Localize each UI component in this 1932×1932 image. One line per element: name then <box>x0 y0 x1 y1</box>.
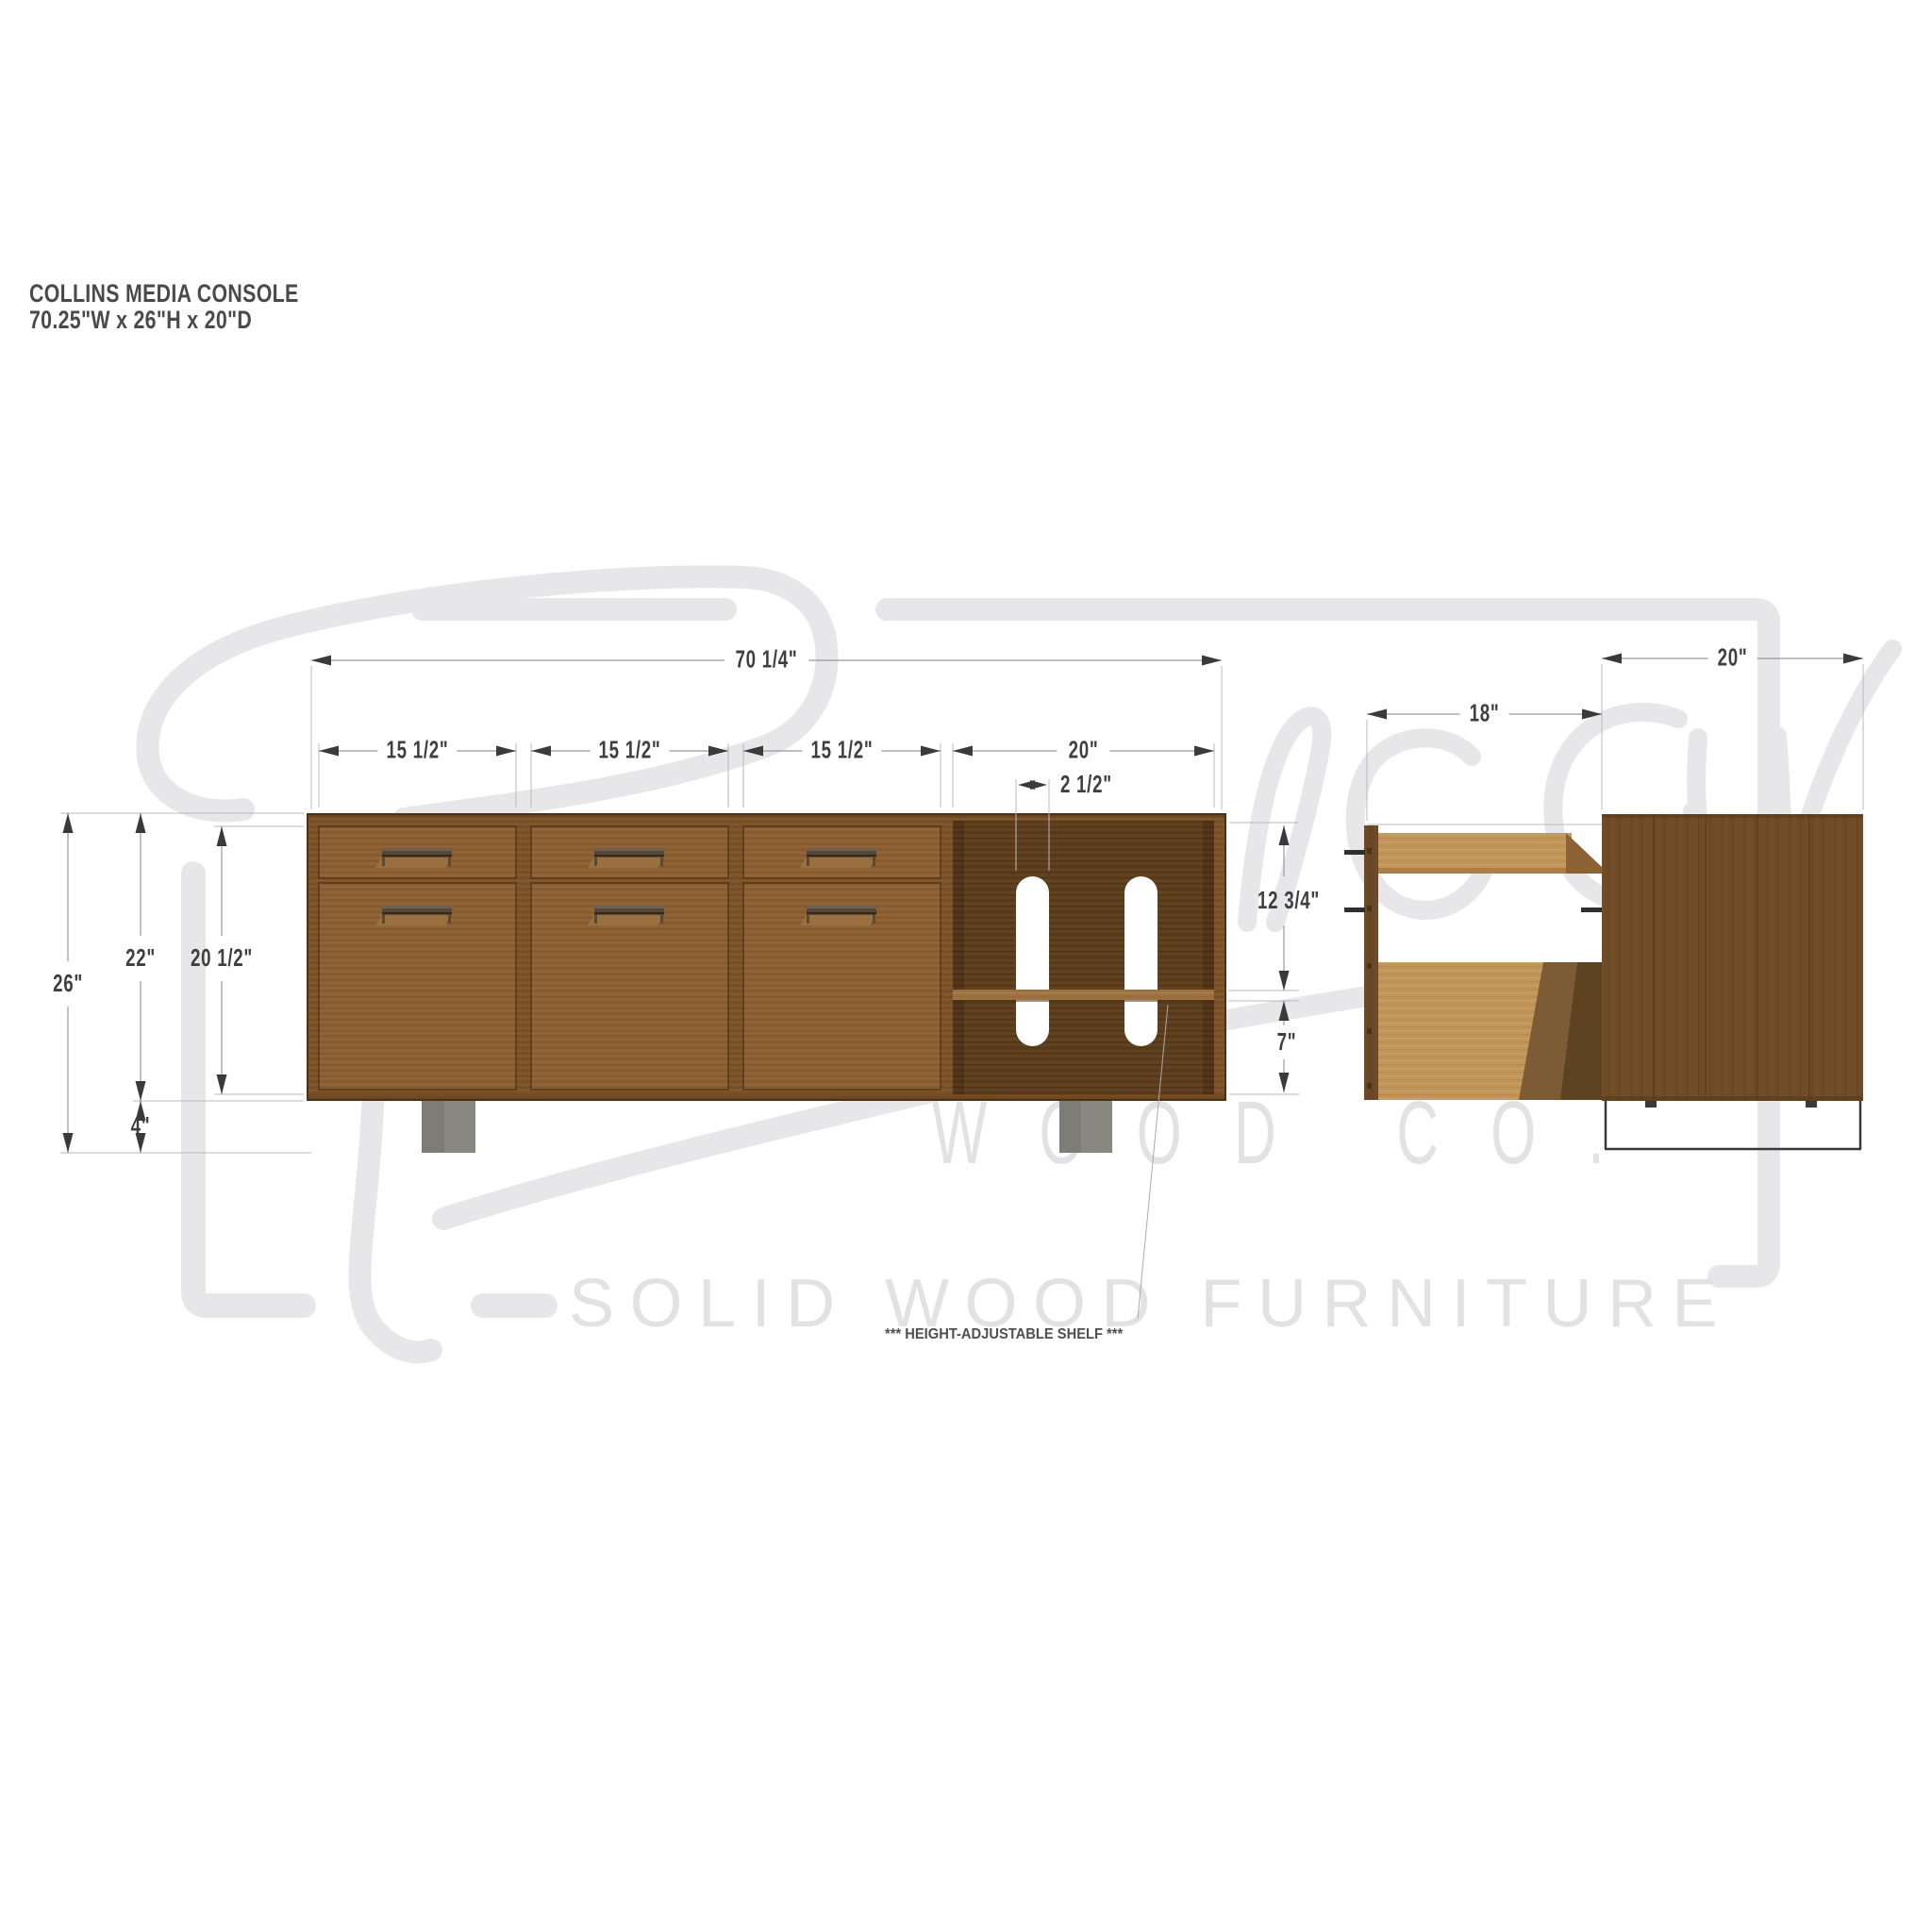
svg-text:2 1/2": 2 1/2" <box>1060 770 1112 798</box>
svg-text:18": 18" <box>1470 698 1500 726</box>
svg-text:22": 22" <box>125 943 156 972</box>
svg-text:15 1/2": 15 1/2" <box>811 735 874 763</box>
svg-text:26": 26" <box>53 969 83 997</box>
svg-text:70.25"W x 26"H x 20"D: 70.25"W x 26"H x 20"D <box>29 307 252 335</box>
svg-text:20": 20" <box>1718 642 1748 671</box>
svg-text:4": 4" <box>131 1111 151 1140</box>
svg-text:20 1/2": 20 1/2" <box>191 943 253 972</box>
svg-text:15 1/2": 15 1/2" <box>599 735 661 763</box>
svg-text:7": 7" <box>1277 1027 1297 1056</box>
svg-text:20": 20" <box>1069 735 1099 763</box>
svg-text:70 1/4": 70 1/4" <box>736 644 798 673</box>
svg-text:COLLINS MEDIA CONSOLE: COLLINS MEDIA CONSOLE <box>29 280 298 308</box>
svg-text:SOLID WOOD FURNITURE: SOLID WOOD FURNITURE <box>569 1266 1733 1341</box>
svg-text:12 3/4": 12 3/4" <box>1257 886 1320 914</box>
svg-text:*** HEIGHT-ADJUSTABLE SHELF **: *** HEIGHT-ADJUSTABLE SHELF *** <box>885 1325 1123 1342</box>
svg-text:15 1/2": 15 1/2" <box>387 735 449 763</box>
